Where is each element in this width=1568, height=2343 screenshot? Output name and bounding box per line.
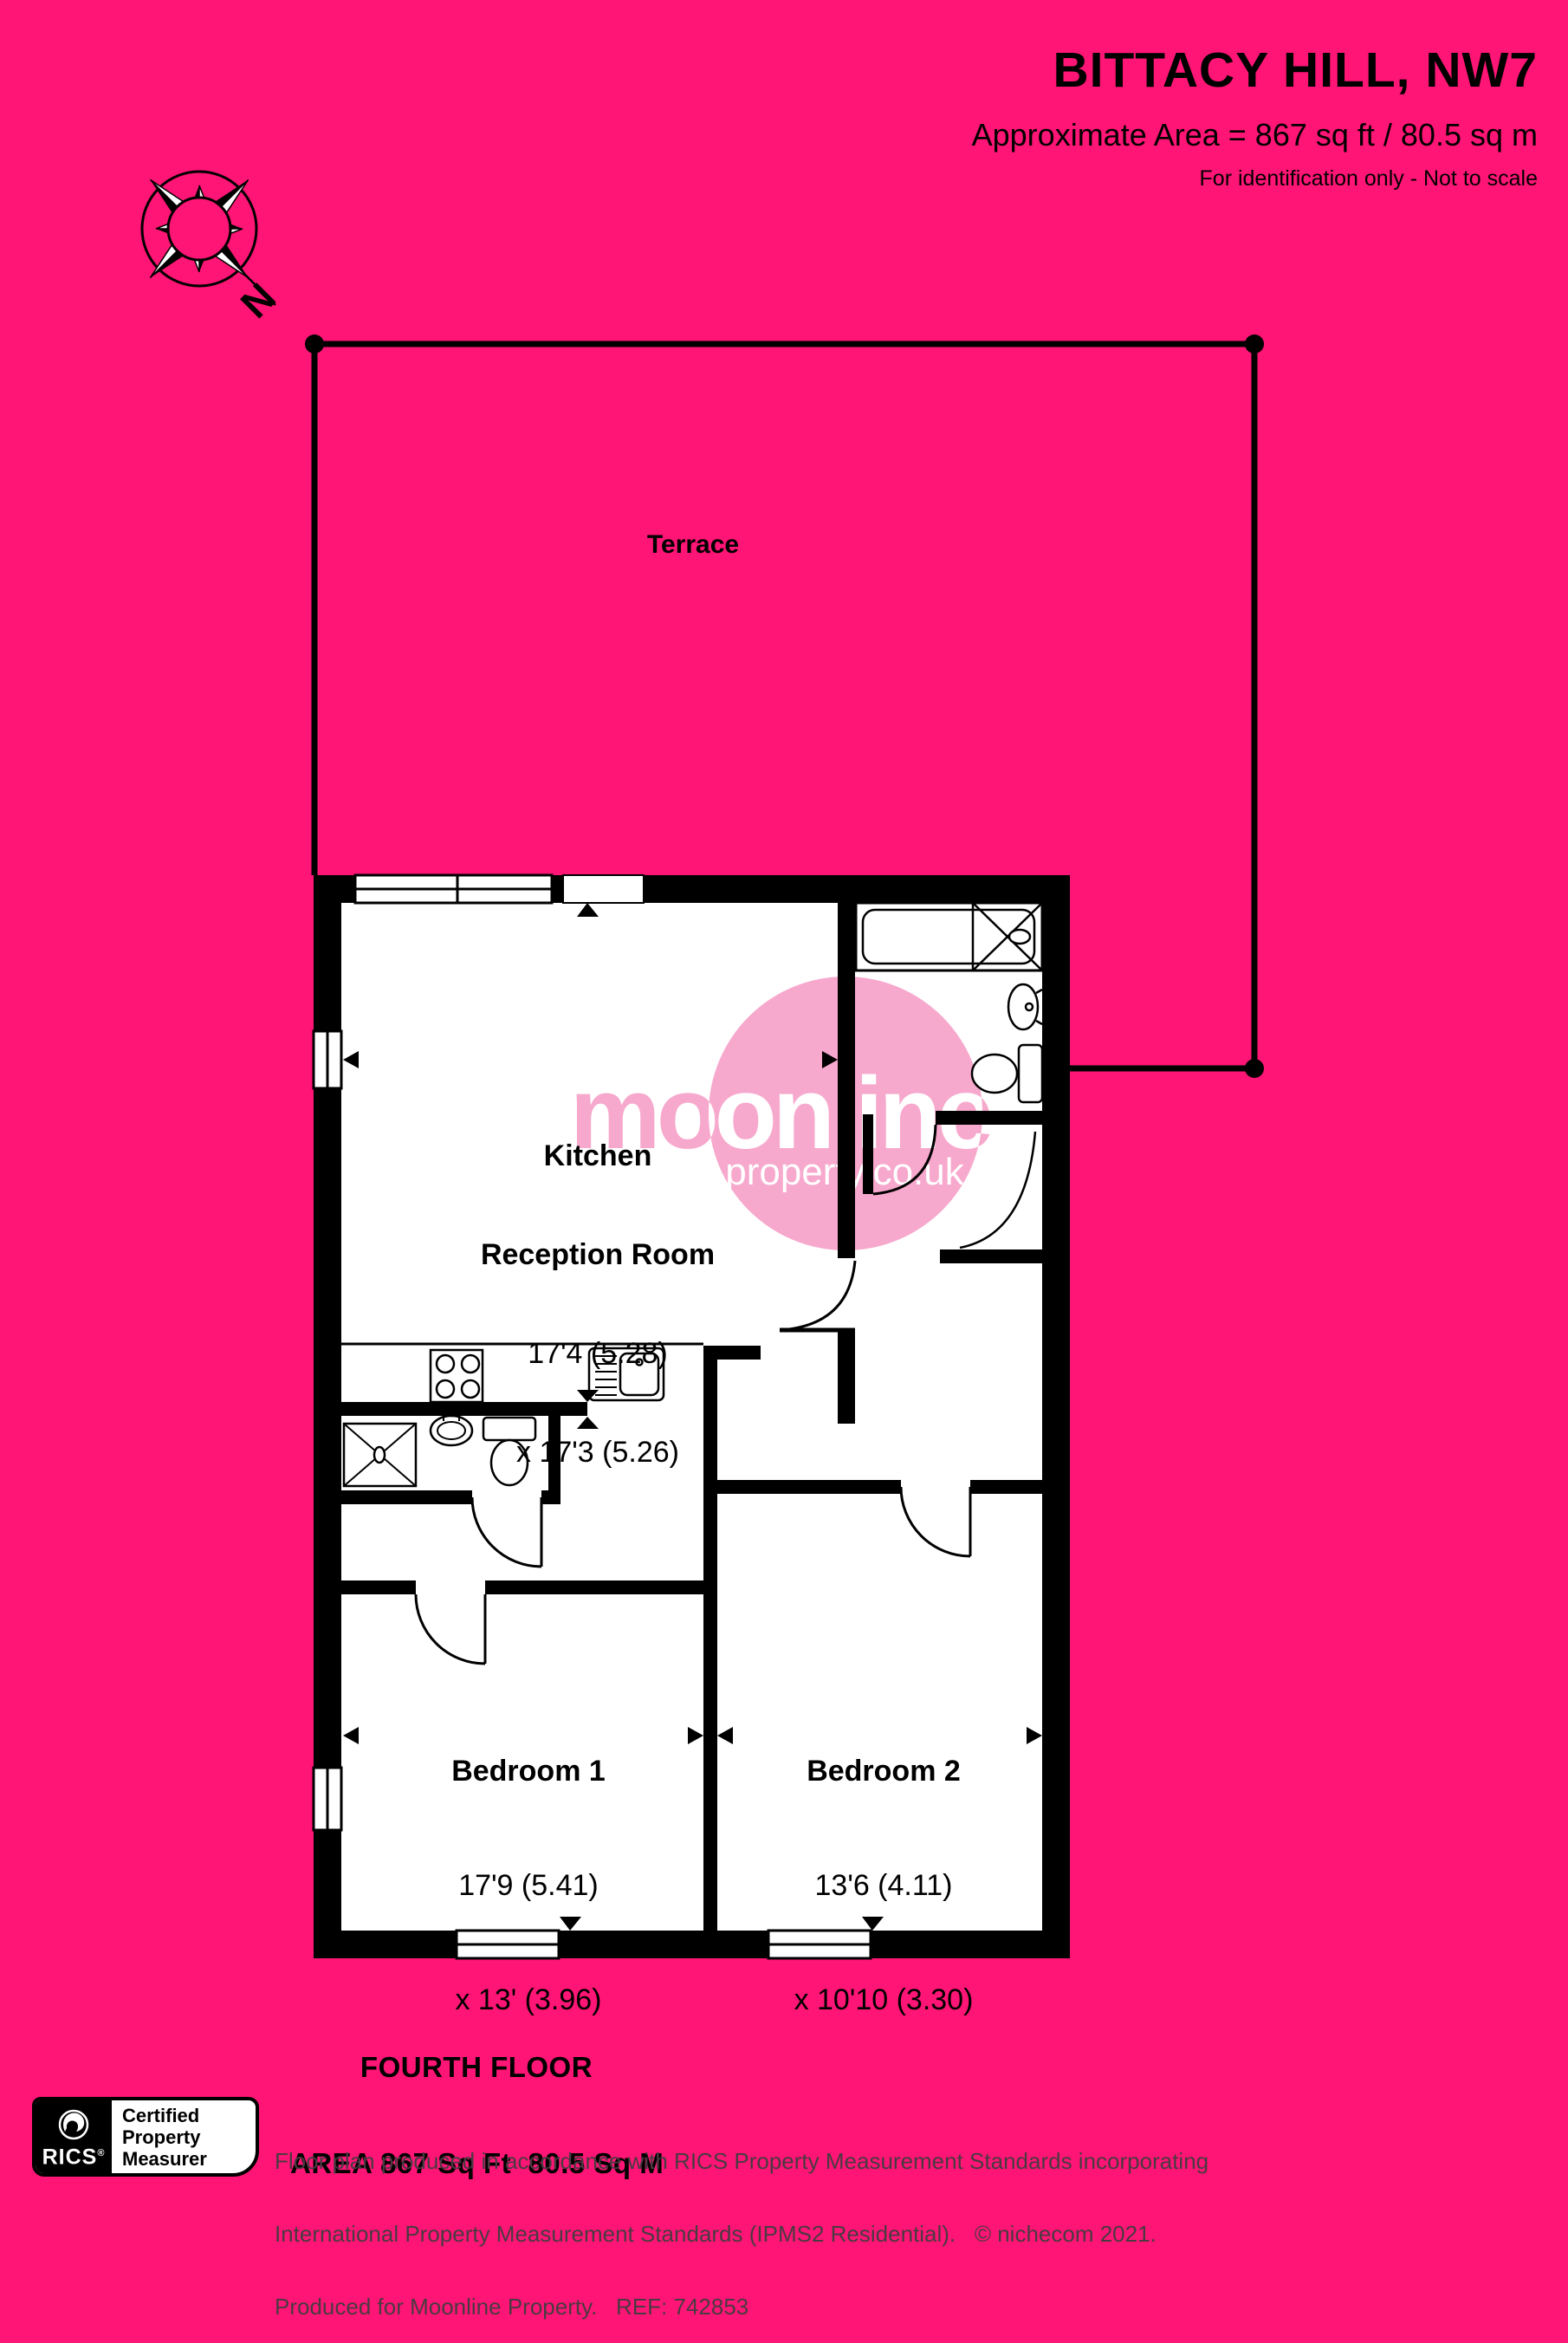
room-dimension: 17'4 (5.28) xyxy=(424,1337,771,1370)
room-dimension: x 10'10 (3.30) xyxy=(710,1981,1057,2019)
disclaimer-line: Floor plan produced in accordance with R… xyxy=(275,2149,1357,2173)
room-dimension: 13'6 (4.11) xyxy=(710,1866,1057,1905)
rics-line: Certified xyxy=(122,2105,256,2126)
disclaimer-line: International Property Measurement Stand… xyxy=(275,2222,1357,2246)
rics-line: Measurer xyxy=(122,2148,256,2170)
toilet-icon xyxy=(1019,1045,1042,1102)
floorplan-page: { "header": { "title": "BITTACY HILL, NW… xyxy=(0,0,1568,2218)
disclaimer-line: Produced for Moonline Property. REF: 742… xyxy=(275,2294,1357,2319)
rics-line: Property xyxy=(122,2126,256,2148)
room-name: Bedroom 2 xyxy=(710,1752,1057,1790)
compass-north-label: N xyxy=(232,275,284,327)
floor-name: FOURTH FLOOR xyxy=(290,2051,663,2083)
terrace-door-opening xyxy=(563,875,644,903)
rics-certified-badge: RICS® Certified Property Measurer xyxy=(32,2097,259,2177)
rics-wordmark: RICS® xyxy=(42,2143,106,2167)
kitchen-reception-label: Kitchen Reception Room 17'4 (5.28) x 17'… xyxy=(424,1074,771,1502)
rics-logo: RICS® xyxy=(36,2100,112,2173)
bedroom2-label: Bedroom 2 13'6 (4.11) x 10'10 (3.30) xyxy=(710,1676,1057,2057)
room-name: Kitchen xyxy=(424,1139,771,1172)
rics-lion-icon xyxy=(55,2106,93,2143)
identification-note: For identification only - Not to scale xyxy=(972,166,1538,191)
rics-certification-text: Certified Property Measurer xyxy=(112,2100,256,2173)
room-name: Reception Room xyxy=(424,1238,771,1271)
room-dimension: x 17'3 (5.26) xyxy=(424,1436,771,1469)
area-subtitle: Approximate Area = 867 sq ft / 80.5 sq m xyxy=(972,118,1538,153)
plan-header: BITTACY HILL, NW7 Approximate Area = 867… xyxy=(972,43,1538,191)
room-name: Bedroom 1 xyxy=(355,1752,702,1790)
rics-reg-mark: ® xyxy=(97,2148,105,2158)
footer-disclaimer: Floor plan produced in accordance with R… xyxy=(275,2100,1357,2343)
room-dimension: 17'9 (5.41) xyxy=(355,1866,702,1905)
rics-org-text: RICS xyxy=(42,2145,98,2169)
terrace-label: Terrace xyxy=(563,530,823,560)
page-title: BITTACY HILL, NW7 xyxy=(972,43,1538,97)
